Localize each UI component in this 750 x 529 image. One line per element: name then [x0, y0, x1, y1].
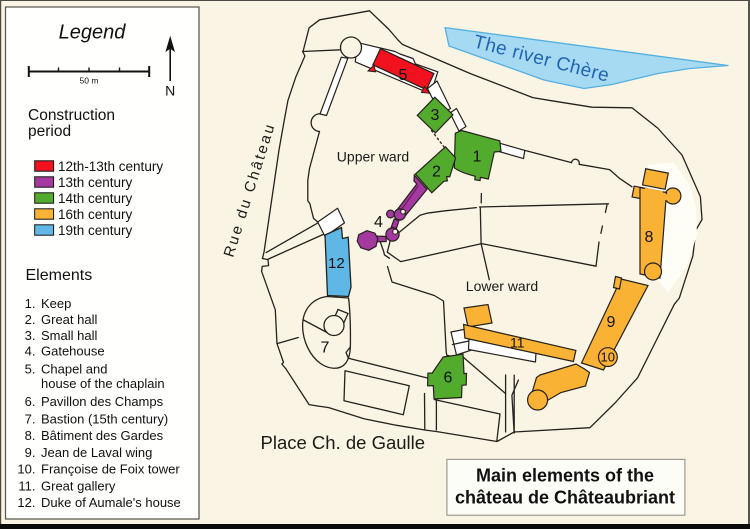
svg-text:8.: 8. — [25, 428, 36, 443]
svg-text:Upper ward: Upper ward — [337, 149, 409, 165]
svg-text:10: 10 — [601, 350, 615, 365]
svg-text:11: 11 — [510, 335, 525, 351]
svg-text:Lower ward: Lower ward — [466, 278, 538, 294]
svg-text:2.: 2. — [25, 312, 36, 327]
svg-text:Legend: Legend — [59, 22, 127, 44]
svg-text:period: period — [28, 123, 71, 140]
svg-text:2: 2 — [432, 164, 441, 181]
svg-text:9: 9 — [607, 314, 616, 331]
svg-text:12: 12 — [328, 255, 345, 272]
svg-text:Duke of Aumale's house: Duke of Aumale's house — [41, 495, 181, 510]
svg-text:12.: 12. — [17, 495, 35, 510]
svg-text:Place Ch. de Gaulle: Place Ch. de Gaulle — [261, 432, 426, 453]
svg-text:7.: 7. — [25, 411, 36, 426]
svg-text:Elements: Elements — [26, 267, 93, 284]
svg-text:6: 6 — [444, 370, 453, 387]
svg-text:13th century: 13th century — [58, 175, 133, 190]
svg-text:7: 7 — [321, 340, 330, 357]
svg-text:3: 3 — [431, 107, 440, 124]
svg-text:4.: 4. — [25, 343, 36, 358]
svg-text:16th century: 16th century — [58, 207, 133, 222]
svg-text:Bâtiment des Gardes: Bâtiment des Gardes — [41, 428, 164, 443]
svg-text:11.: 11. — [18, 478, 35, 493]
svg-text:Small hall: Small hall — [41, 328, 97, 343]
svg-text:house of the chaplain: house of the chaplain — [41, 376, 165, 391]
svg-text:Françoise de Foix tower: Françoise de Foix tower — [41, 461, 180, 476]
svg-text:5.: 5. — [25, 361, 36, 376]
svg-text:1.: 1. — [25, 296, 36, 311]
svg-text:50 m: 50 m — [80, 76, 99, 86]
svg-text:4: 4 — [374, 214, 383, 231]
svg-text:6.: 6. — [25, 394, 36, 409]
svg-text:N: N — [165, 83, 175, 99]
svg-text:Great gallery: Great gallery — [41, 478, 116, 493]
svg-text:Jean de Laval wing: Jean de Laval wing — [41, 445, 152, 460]
svg-text:5: 5 — [399, 67, 408, 84]
svg-text:Main elements of the: Main elements of the — [476, 466, 654, 486]
svg-text:19th century: 19th century — [58, 223, 133, 238]
svg-text:12th-13th century: 12th-13th century — [58, 159, 163, 174]
svg-text:10.: 10. — [17, 461, 35, 476]
svg-text:Keep: Keep — [41, 296, 71, 311]
svg-text:Great hall: Great hall — [41, 312, 97, 327]
svg-text:Bastion (15th century): Bastion (15th century) — [41, 411, 168, 426]
svg-text:château de Châteaubriant: château de Châteaubriant — [455, 488, 675, 508]
svg-text:Pavillon des Champs: Pavillon des Champs — [41, 394, 164, 409]
svg-text:8: 8 — [645, 229, 654, 246]
svg-text:9.: 9. — [25, 445, 36, 460]
svg-text:Construction: Construction — [28, 107, 115, 124]
svg-text:1: 1 — [473, 149, 482, 166]
svg-text:Chapel and: Chapel and — [41, 361, 108, 376]
svg-text:14th century: 14th century — [58, 191, 133, 206]
svg-text:Gatehouse: Gatehouse — [41, 343, 105, 358]
svg-text:3.: 3. — [25, 328, 36, 343]
